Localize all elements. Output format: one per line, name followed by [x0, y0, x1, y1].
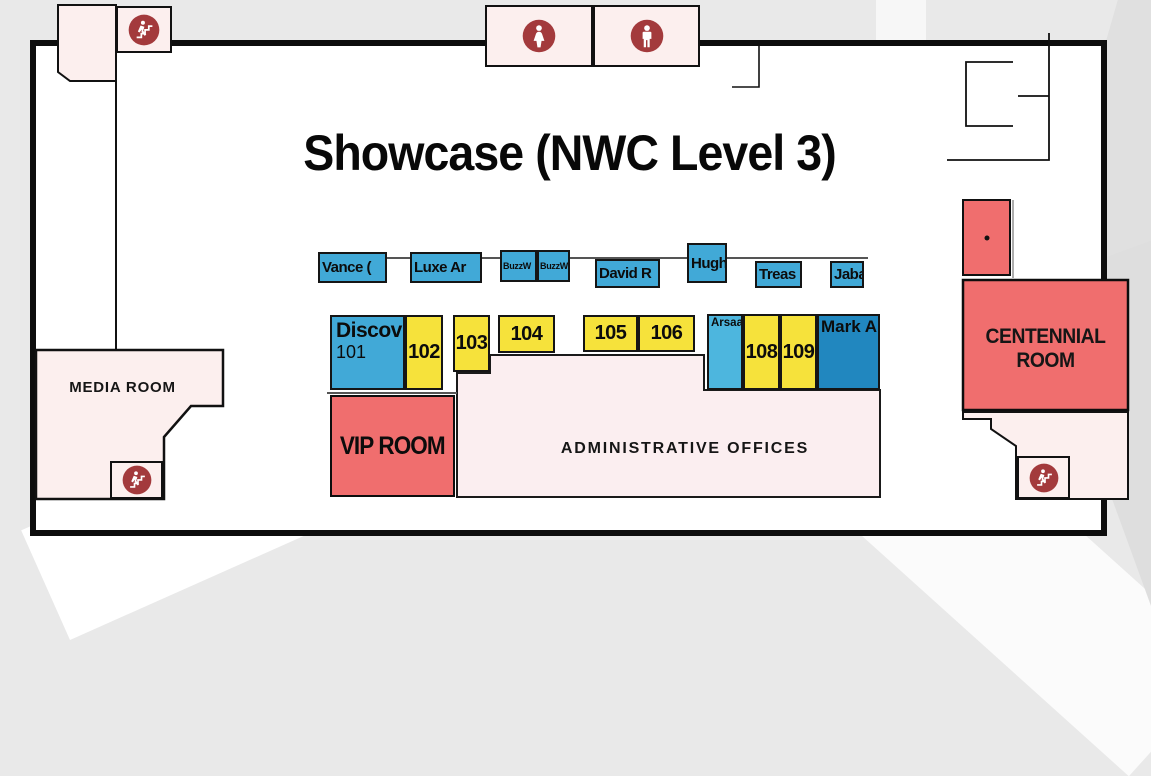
vip-room: VIP ROOM: [330, 395, 455, 497]
booth-106: 106: [638, 315, 695, 352]
booth-label: Luxe Ar: [414, 259, 466, 276]
stairs-icon: [122, 465, 152, 495]
booth-mark: Mark A: [817, 314, 880, 390]
booth-buzzw-2: BuzzW: [537, 250, 570, 282]
booth-treas: Treas: [755, 261, 802, 288]
stairs-icon: [1029, 463, 1059, 493]
booth-label: Jabar: [834, 266, 864, 283]
stairs-icon: [128, 14, 160, 46]
booth-number: 104: [511, 323, 543, 346]
booth-label: BuzzW: [503, 261, 531, 271]
booth-david: David R: [595, 259, 660, 288]
booth-number: 101: [336, 342, 366, 362]
admin-offices-label: ADMINISTRATIVE OFFICES: [490, 440, 880, 458]
booth-label: David R: [599, 265, 651, 282]
womens-restroom: [485, 5, 593, 67]
booth-102: 102: [405, 315, 443, 390]
vip-room-label: VIP ROOM: [340, 432, 445, 461]
booth-arsaa: Arsaa: [707, 314, 743, 390]
floor-plan-outline: [30, 40, 1107, 536]
booth-number: 103: [456, 332, 488, 355]
stairs-bottom-right: [1017, 456, 1070, 499]
booth-number: 108: [746, 341, 778, 364]
booth-label: Mark A: [821, 317, 877, 337]
booth-label: Discov: [336, 319, 402, 342]
mens-restroom-icon: [630, 19, 664, 53]
booth-105: 105: [583, 315, 638, 352]
booth-103: 103: [453, 315, 490, 372]
booth-number: 102: [408, 341, 440, 364]
booth-vance: Vance (: [318, 252, 387, 283]
booth-label: Vance (: [322, 259, 371, 276]
booth-109: 109: [780, 314, 817, 390]
booth-label: BuzzW: [540, 261, 568, 271]
stairs-top-left: [116, 6, 172, 53]
booth-luxe: Luxe Ar: [410, 252, 482, 283]
booth-jabar: Jabar: [830, 261, 864, 288]
booth-108: 108: [743, 314, 780, 390]
booth-104: 104: [498, 315, 555, 353]
booth-label: Hughe: [691, 255, 727, 272]
booth-hughes: Hughe: [687, 243, 727, 283]
booth-label: Arsaa: [711, 317, 743, 329]
booth-number: 106: [651, 322, 683, 345]
booth-label: Treas: [759, 266, 796, 283]
mens-restroom: [593, 5, 700, 67]
booth-101: Discov 101: [330, 315, 405, 390]
booth-number: 105: [595, 322, 627, 345]
centennial-room-label: CENTENNIAL ROOM: [970, 325, 1122, 373]
booth-buzzw-1: BuzzW: [500, 250, 537, 282]
womens-restroom-icon: [522, 19, 556, 53]
booth-number: 109: [783, 341, 815, 364]
stairs-bottom-left: [110, 461, 163, 499]
media-room-label: MEDIA ROOM: [55, 378, 190, 397]
floor-plan-page: { "title": "Showcase (NWC Level 3)", "ro…: [0, 0, 1151, 578]
page-title: Showcase (NWC Level 3): [71, 124, 1067, 182]
